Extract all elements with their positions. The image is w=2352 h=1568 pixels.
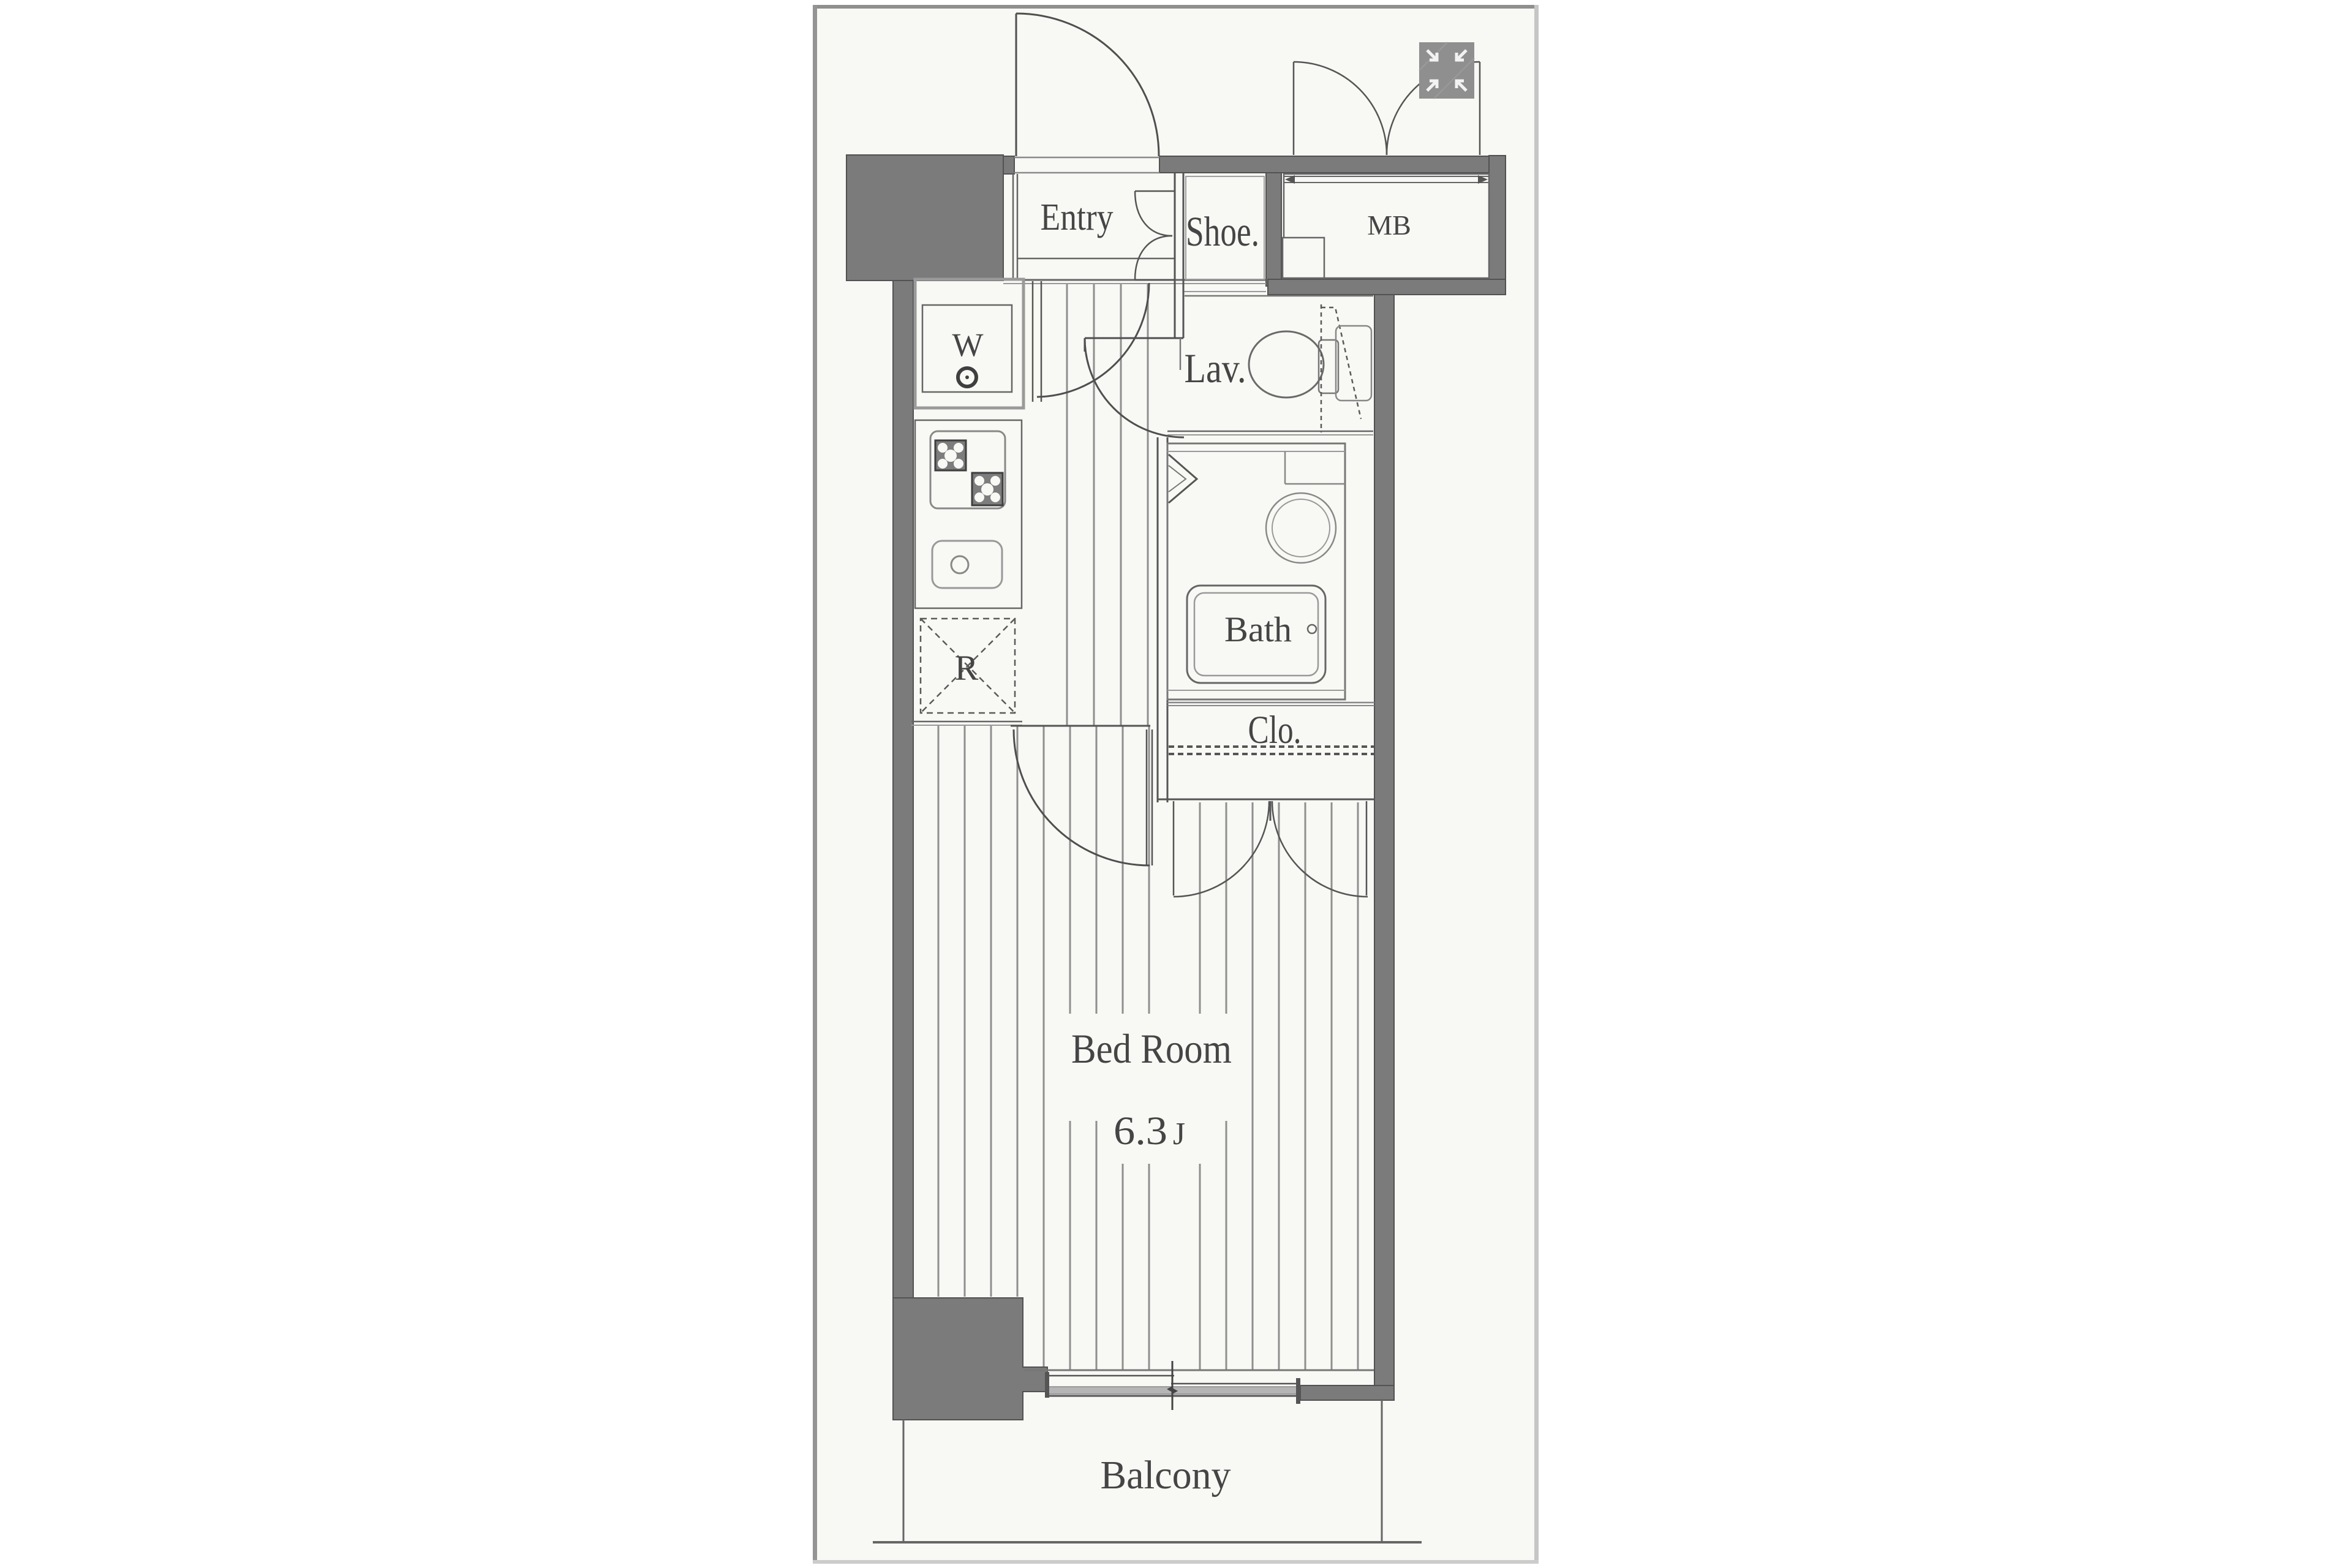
svg-text:W: W — [952, 326, 984, 363]
svg-text:Bath: Bath — [1224, 609, 1292, 649]
svg-text:Balcony: Balcony — [1101, 1453, 1231, 1498]
svg-text:6.3: 6.3 — [1114, 1109, 1167, 1153]
svg-text:J: J — [1173, 1117, 1185, 1151]
svg-text:R: R — [955, 648, 979, 688]
svg-text:Shoe.: Shoe. — [1186, 208, 1259, 255]
svg-text:Lav.: Lav. — [1185, 345, 1246, 391]
svg-text:Clo.: Clo. — [1248, 708, 1302, 752]
svg-text:Bed Room: Bed Room — [1071, 1025, 1232, 1072]
svg-text:MB: MB — [1367, 209, 1411, 241]
svg-text:Entry: Entry — [1041, 197, 1114, 238]
